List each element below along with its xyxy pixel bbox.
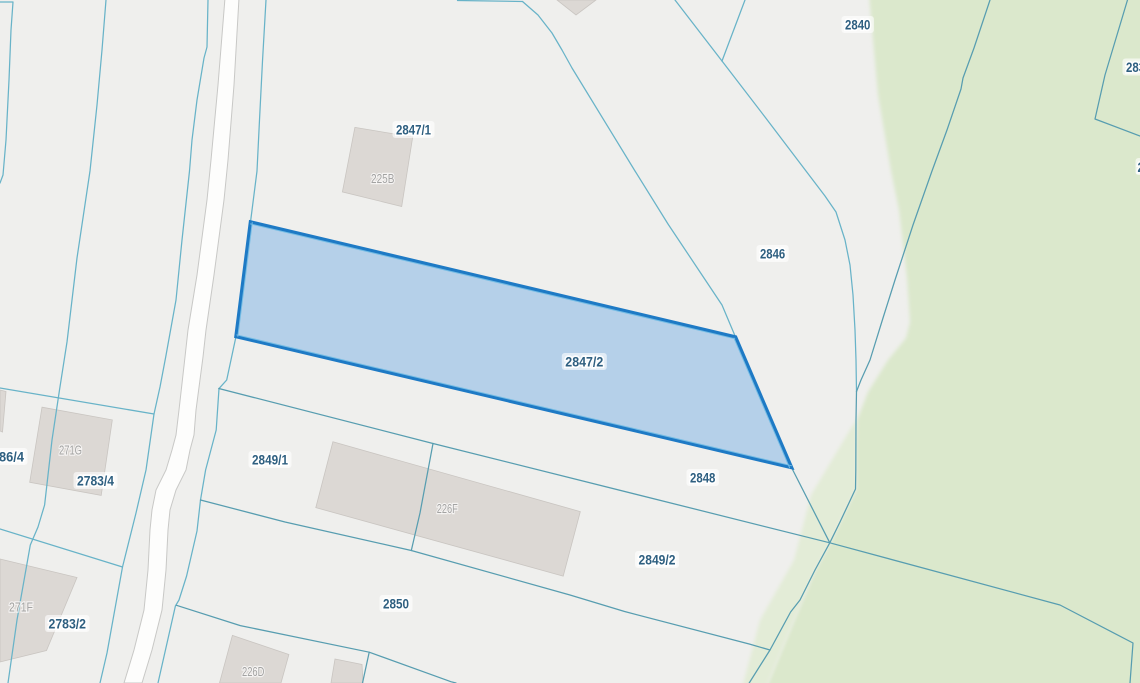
svg-text:2848: 2848 [690,470,716,486]
svg-text:2850: 2850 [383,596,409,612]
svg-text:226F: 226F [437,501,458,516]
svg-text:2847/2: 2847/2 [565,354,603,370]
svg-text:271G: 271G [59,443,82,458]
svg-text:2783/2: 2783/2 [49,616,87,632]
svg-text:2849/1: 2849/1 [252,452,288,468]
svg-text:271F: 271F [9,600,33,615]
svg-text:225B: 225B [371,171,394,186]
svg-text:226D: 226D [242,664,264,679]
svg-text:2840: 2840 [845,17,871,33]
svg-text:2849/2: 2849/2 [639,552,676,568]
svg-text:2835: 2835 [1126,59,1140,75]
svg-text:2847/1: 2847/1 [396,122,431,138]
svg-text:2846: 2846 [760,246,785,262]
svg-text:86/4: 86/4 [0,449,24,465]
svg-text:2783/4: 2783/4 [77,473,114,489]
